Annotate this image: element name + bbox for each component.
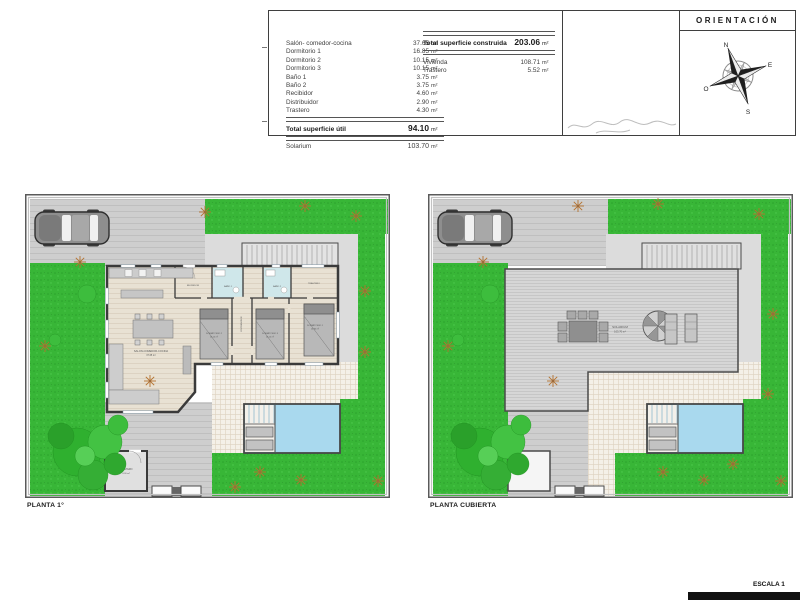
shed-area: 4.30 m² — [122, 472, 130, 475]
scale-label: ESCALA 1 — [753, 581, 785, 588]
row-label: Baño 2 — [286, 82, 399, 89]
car-icon — [35, 210, 109, 247]
row-unit: m² — [540, 67, 555, 75]
room-label-dorm2: DORMITORIO 2 — [206, 333, 223, 335]
area-row: Dormitorio 2 10.15 m² — [286, 57, 444, 65]
swimming-pool — [647, 404, 743, 453]
row-unit: m² — [429, 108, 444, 115]
row-unit: m² — [429, 83, 444, 90]
row-value: 4.60 — [399, 90, 429, 97]
row-unit: m² — [429, 125, 444, 135]
row-label: Total superficie construida — [423, 39, 510, 49]
total-util-row: Total superficie útil 94.10 m² — [286, 123, 444, 135]
row-unit: m² — [429, 75, 444, 82]
separator — [423, 50, 555, 55]
footer-bar — [688, 592, 800, 600]
area-row: Dormitorio 3 10.15 m² — [286, 65, 444, 73]
bed — [200, 304, 334, 359]
room-label-bano1: BAÑO 1 — [224, 285, 233, 288]
area-row: Salón- comedor-cocina 37.65 m² — [286, 40, 444, 48]
row-label: Salón- comedor-cocina — [286, 40, 399, 47]
row-value: 2.90 — [399, 99, 429, 106]
orientation-box: ORIENTACIÓN — [679, 11, 795, 135]
row-label: Solarium — [286, 142, 399, 151]
row-value: 4.30 — [399, 107, 429, 114]
area-row: Vivienda 108.71 m² — [423, 59, 555, 67]
solarium-row: Solarium 103.70 m² — [286, 142, 444, 152]
site-plan-cubierta: SOLARIUM 103.70 m² — [428, 194, 793, 498]
row-label: Trastero — [423, 67, 510, 75]
separator — [286, 136, 444, 141]
area-row: Dormitorio 1 16.85 m² — [286, 48, 444, 56]
plan-caption-right: PLANTA CUBIERTA — [430, 502, 496, 509]
solarium-area: 103.70 m² — [614, 330, 626, 334]
solarium-label: SOLARIUM — [612, 325, 628, 329]
row-value: 108.71 — [510, 59, 540, 67]
compass-rose: N E O S — [696, 34, 780, 118]
room-label-dorm1: DORMITORIO 1 — [307, 325, 324, 327]
room-label-distribuidor: DISTRIBUIDOR — [241, 316, 243, 331]
row-unit: m² — [540, 39, 555, 49]
row-value: 3.75 — [399, 82, 429, 89]
row-label: Dormitorio 3 — [286, 65, 399, 72]
row-value: 103.70 — [399, 142, 429, 151]
signature-scribble — [566, 114, 678, 138]
room-label-recibidor: RECIBIDOR — [187, 285, 200, 287]
row-unit: m² — [429, 143, 444, 152]
row-value: 94.10 — [399, 123, 429, 133]
tick-mark — [262, 47, 267, 48]
compass-label-e: E — [767, 62, 772, 69]
row-unit: m² — [429, 100, 444, 107]
row-label: Dormitorio 2 — [286, 57, 399, 64]
area-row: Baño 2 3.75 m² — [286, 82, 444, 90]
compass-label-s: S — [745, 109, 750, 116]
row-unit: m² — [540, 59, 555, 67]
row-label: Baño 1 — [286, 74, 399, 81]
row-label: Recibidor — [286, 90, 399, 97]
separator — [423, 31, 555, 36]
room-area-dorm1: 16.85 m² — [311, 328, 320, 331]
row-unit: m² — [429, 91, 444, 98]
stair — [242, 243, 338, 266]
car-icon — [438, 210, 512, 247]
total-built-row: Total superficie construida 203.06 m² — [423, 37, 555, 49]
row-label: Dormitorio 1 — [286, 48, 399, 55]
area-row: Baño 1 3.75 m² — [286, 74, 444, 82]
separator — [286, 117, 444, 122]
plan-caption-left: PLANTA 1° — [27, 502, 64, 509]
row-label: Trastero — [286, 107, 399, 114]
row-label: Total superficie útil — [286, 125, 399, 135]
room-area-dorm3: 10.15 m² — [266, 336, 275, 339]
area-row: Distribuidor 2.90 m² — [286, 99, 444, 107]
room-area-dorm2: 10.15 m² — [210, 336, 219, 339]
area-row: Trastero 5.52 m² — [423, 67, 555, 75]
compass-label-n: N — [723, 42, 728, 49]
room-label-bano2: BAÑO 2 — [273, 285, 282, 288]
compass-label-o: O — [703, 86, 708, 93]
room-label-trastero: TRASTERO — [308, 282, 320, 285]
orientation-title: ORIENTACIÓN — [680, 11, 795, 31]
row-label: Vivienda — [423, 59, 510, 67]
room-label-salon: SALON-COMEDOR-COCINA — [134, 349, 168, 353]
area-row: Recibidor 4.60 m² — [286, 90, 444, 98]
row-value: 203.06 — [510, 37, 540, 47]
row-label: Distribuidor — [286, 99, 399, 106]
tick-mark — [262, 121, 267, 122]
areas-table-util: Salón- comedor-cocina 37.65 m² Dormitori… — [286, 40, 444, 152]
divider — [562, 11, 563, 135]
swimming-pool — [244, 404, 340, 453]
row-value: 5.52 — [510, 67, 540, 75]
areas-table-built: Total superficie construida 203.06 m² Vi… — [423, 30, 555, 75]
room-area-salon: 37.65 m² — [146, 354, 156, 357]
drawing-sheet: Salón- comedor-cocina 37.65 m² Dormitori… — [0, 0, 800, 600]
site-plan-planta-1: SALON-COMEDOR-COCINA 37.65 m² DORMITORIO… — [25, 194, 390, 498]
room-label-dorm3: DORMITORIO 3 — [262, 333, 279, 335]
area-row: Trastero 4.30 m² — [286, 107, 444, 115]
title-block: Salón- comedor-cocina 37.65 m² Dormitori… — [268, 10, 796, 136]
